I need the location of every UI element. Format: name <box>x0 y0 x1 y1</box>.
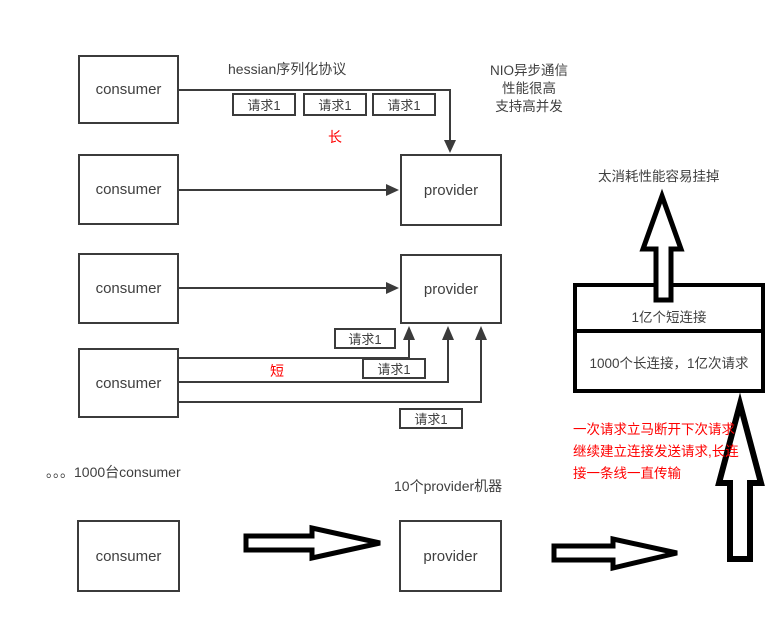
request-label: 请求1 <box>348 329 381 348</box>
hessian-protocol-label: hessian序列化协议 <box>228 59 346 79</box>
provider-label: provider <box>424 182 478 199</box>
red-note-line-2: 继续建立连接发送请求,长连 <box>573 441 739 463</box>
consumer-label: consumer <box>96 280 162 297</box>
request-label: 请求1 <box>318 95 351 114</box>
provider-box-3: provider <box>399 520 502 592</box>
dubbo-rpc-diagram: consumer consumer consumer consumer cons… <box>0 0 779 624</box>
consumer-label: consumer <box>96 81 162 98</box>
arrowhead-up-icon <box>403 326 415 340</box>
arrowhead-up-icon <box>442 326 454 340</box>
provider-scale-label: 10个provider机器 <box>394 476 502 496</box>
provider-label: provider <box>423 548 477 565</box>
consumer-box-4: consumer <box>78 348 179 418</box>
request-box-3: 请求1 <box>372 93 436 116</box>
long-connection-tag: 长 <box>328 127 342 147</box>
request-label: 请求1 <box>247 95 280 114</box>
request-box-2: 请求1 <box>303 93 367 116</box>
provider-box-1: provider <box>400 154 502 226</box>
arrowhead-right-icon <box>386 282 399 294</box>
bold-right-arrow-icon <box>246 528 380 558</box>
short-connections-cell-label: 1亿个短连接 <box>575 306 763 326</box>
red-note: 一次请求立马断开下次请求 继续建立连接发送请求,长连 接一条线一直传输 <box>573 419 739 485</box>
consumer-label: consumer <box>96 548 162 565</box>
provider-label: provider <box>424 281 478 298</box>
request-label: 请求1 <box>414 409 447 428</box>
arrowhead-up-icon <box>475 326 487 340</box>
nio-note-line-3: 支持高并发 <box>468 98 590 116</box>
request-box-5: 请求1 <box>362 358 426 379</box>
request-box-6: 请求1 <box>399 408 463 429</box>
short-connection-tag: 短 <box>270 361 284 381</box>
request-box-1: 请求1 <box>232 93 296 116</box>
request-label: 请求1 <box>377 359 410 378</box>
nio-note: NIO异步通信 性能很高 支持高并发 <box>468 62 590 116</box>
consumer-label: consumer <box>96 181 162 198</box>
consumer-box-1: consumer <box>78 55 179 124</box>
red-note-line-3: 接一条线一直传输 <box>573 463 739 485</box>
consumer-box-2: consumer <box>78 154 179 225</box>
consumer-box-5: consumer <box>77 520 180 592</box>
connection-stats-box <box>575 285 763 391</box>
provider-box-2: provider <box>400 254 502 324</box>
overload-note: 太消耗性能容易挂掉 <box>598 165 720 185</box>
consumer-scale-label: 。。。1000台consumer <box>46 462 181 482</box>
request-box-4: 请求1 <box>334 328 396 349</box>
request-label: 请求1 <box>387 95 420 114</box>
arrowhead-down-icon <box>444 140 456 153</box>
red-note-line-1: 一次请求立马断开下次请求 <box>573 419 739 441</box>
bold-up-arrow-icon <box>643 196 681 300</box>
bold-right-arrow-icon <box>554 539 677 568</box>
consumer-box-3: consumer <box>78 253 179 324</box>
long-connections-cell-label: 1000个长连接，1亿次请求 <box>575 352 763 372</box>
nio-note-line-1: NIO异步通信 <box>468 62 590 80</box>
arrowhead-right-icon <box>386 184 399 196</box>
nio-note-line-2: 性能很高 <box>468 80 590 98</box>
arrow-consumer4-short-3 <box>179 340 481 402</box>
consumer-label: consumer <box>96 375 162 392</box>
